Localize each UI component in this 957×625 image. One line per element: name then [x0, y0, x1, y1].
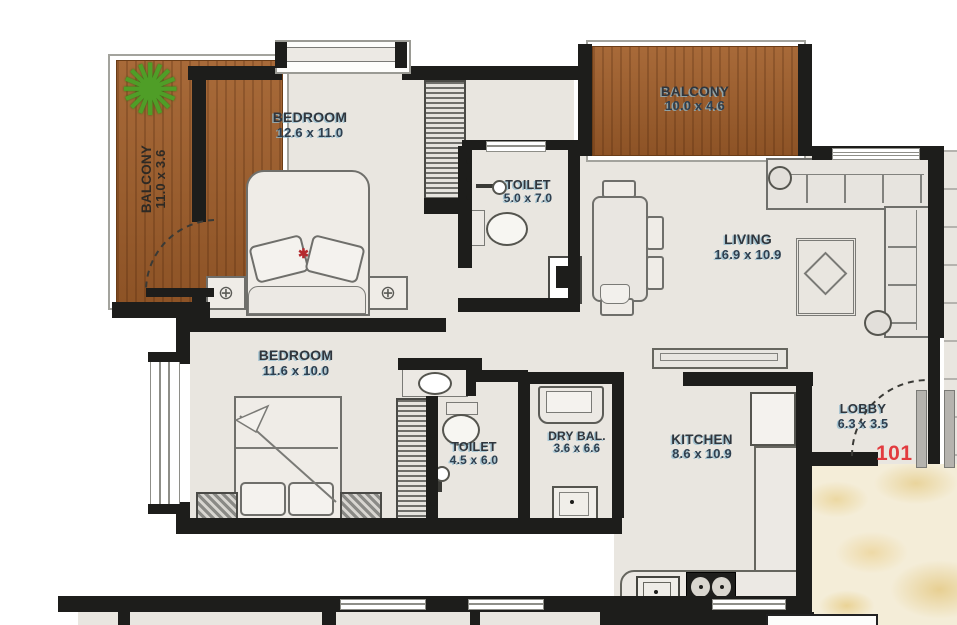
washbasin-icon — [600, 284, 630, 304]
room-label-lobby: LOBBY 6.3 x 3.5 — [793, 402, 933, 431]
wc-icon — [486, 212, 528, 246]
wall-segment — [322, 612, 336, 625]
dining-chair — [646, 216, 664, 250]
room-label-balcony2: BALCONY 10.0 x 4.6 — [620, 84, 770, 114]
nightstand: ⊕ — [368, 276, 408, 310]
balcony1-door-leaf — [146, 288, 214, 297]
wall-segment — [402, 66, 578, 80]
room-label-toilet2: TOILET 4.5 x 6.0 — [414, 440, 534, 467]
sofa-seat-divider — [888, 210, 917, 330]
marble-lobby-floor — [810, 464, 957, 625]
wall-segment — [424, 198, 464, 214]
window — [340, 599, 426, 610]
wall-segment — [752, 612, 762, 625]
window — [712, 599, 786, 610]
room-label-kitchen: KITCHEN 8.6 x 10.9 — [627, 432, 777, 462]
lower-unit-wall — [58, 596, 802, 612]
floor-plan: ✺ BALCONY 11.0 x 3.6 BALCONY 10.0 x 4.6 — [0, 0, 957, 625]
window — [832, 148, 920, 160]
utility-sink-basin — [546, 391, 592, 413]
room-label-living: LIVING 16.9 x 10.9 — [673, 232, 823, 262]
fixture-dot — [466, 158, 472, 164]
wall-segment — [118, 612, 130, 625]
wall-segment — [275, 42, 287, 68]
sofa-decor-plant — [768, 166, 792, 190]
wall-segment — [798, 44, 812, 156]
pillow — [240, 482, 286, 516]
bed-star-icon: ✱ — [298, 246, 309, 262]
washing-machine-inner — [559, 492, 589, 516]
entrance-door-frame — [944, 390, 955, 468]
wall-segment — [192, 66, 206, 222]
kitchen-sink-dot — [654, 590, 658, 594]
room-label-dry-balcony: DRY BAL. 3.6 x 6.6 — [522, 430, 632, 456]
kitchen-counter-right — [754, 446, 800, 576]
wall-segment — [112, 302, 210, 318]
pillow — [288, 482, 334, 516]
bay-window-sill — [283, 47, 401, 62]
tv-unit-shelf — [660, 353, 778, 361]
wall-segment — [527, 372, 624, 384]
wall-segment — [928, 146, 944, 338]
wall-segment — [148, 504, 180, 514]
washing-machine-dot — [570, 500, 574, 504]
window — [150, 360, 180, 508]
lower-unit-door — [766, 614, 878, 625]
unit-number: 101 — [876, 442, 913, 466]
wall-segment — [568, 146, 580, 312]
wall-segment — [683, 372, 813, 386]
entrance-door-leaf — [928, 338, 940, 464]
window — [468, 599, 544, 610]
washbasin-icon — [418, 372, 452, 395]
fixture-dot — [430, 500, 436, 506]
wall-segment — [148, 352, 180, 362]
sofa-decor-plant — [864, 310, 892, 336]
wall-segment — [796, 452, 878, 466]
wall-segment — [176, 518, 448, 534]
room-label-bedroom2: BEDROOM 11.6 x 10.0 — [221, 348, 371, 378]
sofa-seat-divider — [770, 174, 924, 203]
bed-footboard — [248, 286, 366, 314]
wall-segment — [188, 318, 446, 332]
fixture-dot — [430, 432, 436, 438]
room-label-toilet1: TOILET 5.0 x 7.0 — [468, 178, 588, 205]
wc-tank — [470, 210, 485, 246]
window — [486, 141, 546, 152]
toilet-door-stop — [556, 266, 569, 288]
wall-segment — [470, 612, 480, 625]
wall-segment — [424, 518, 622, 534]
wall-segment — [395, 42, 407, 68]
room-label-bedroom1: BEDROOM 12.6 x 11.0 — [235, 110, 385, 140]
wall-segment — [466, 368, 476, 396]
dining-chair — [646, 256, 664, 290]
dining-chair — [602, 180, 636, 198]
wall-segment — [458, 298, 580, 312]
wall-segment — [578, 44, 592, 156]
room-label-balcony1: BALCONY 11.0 x 3.6 — [139, 104, 181, 254]
